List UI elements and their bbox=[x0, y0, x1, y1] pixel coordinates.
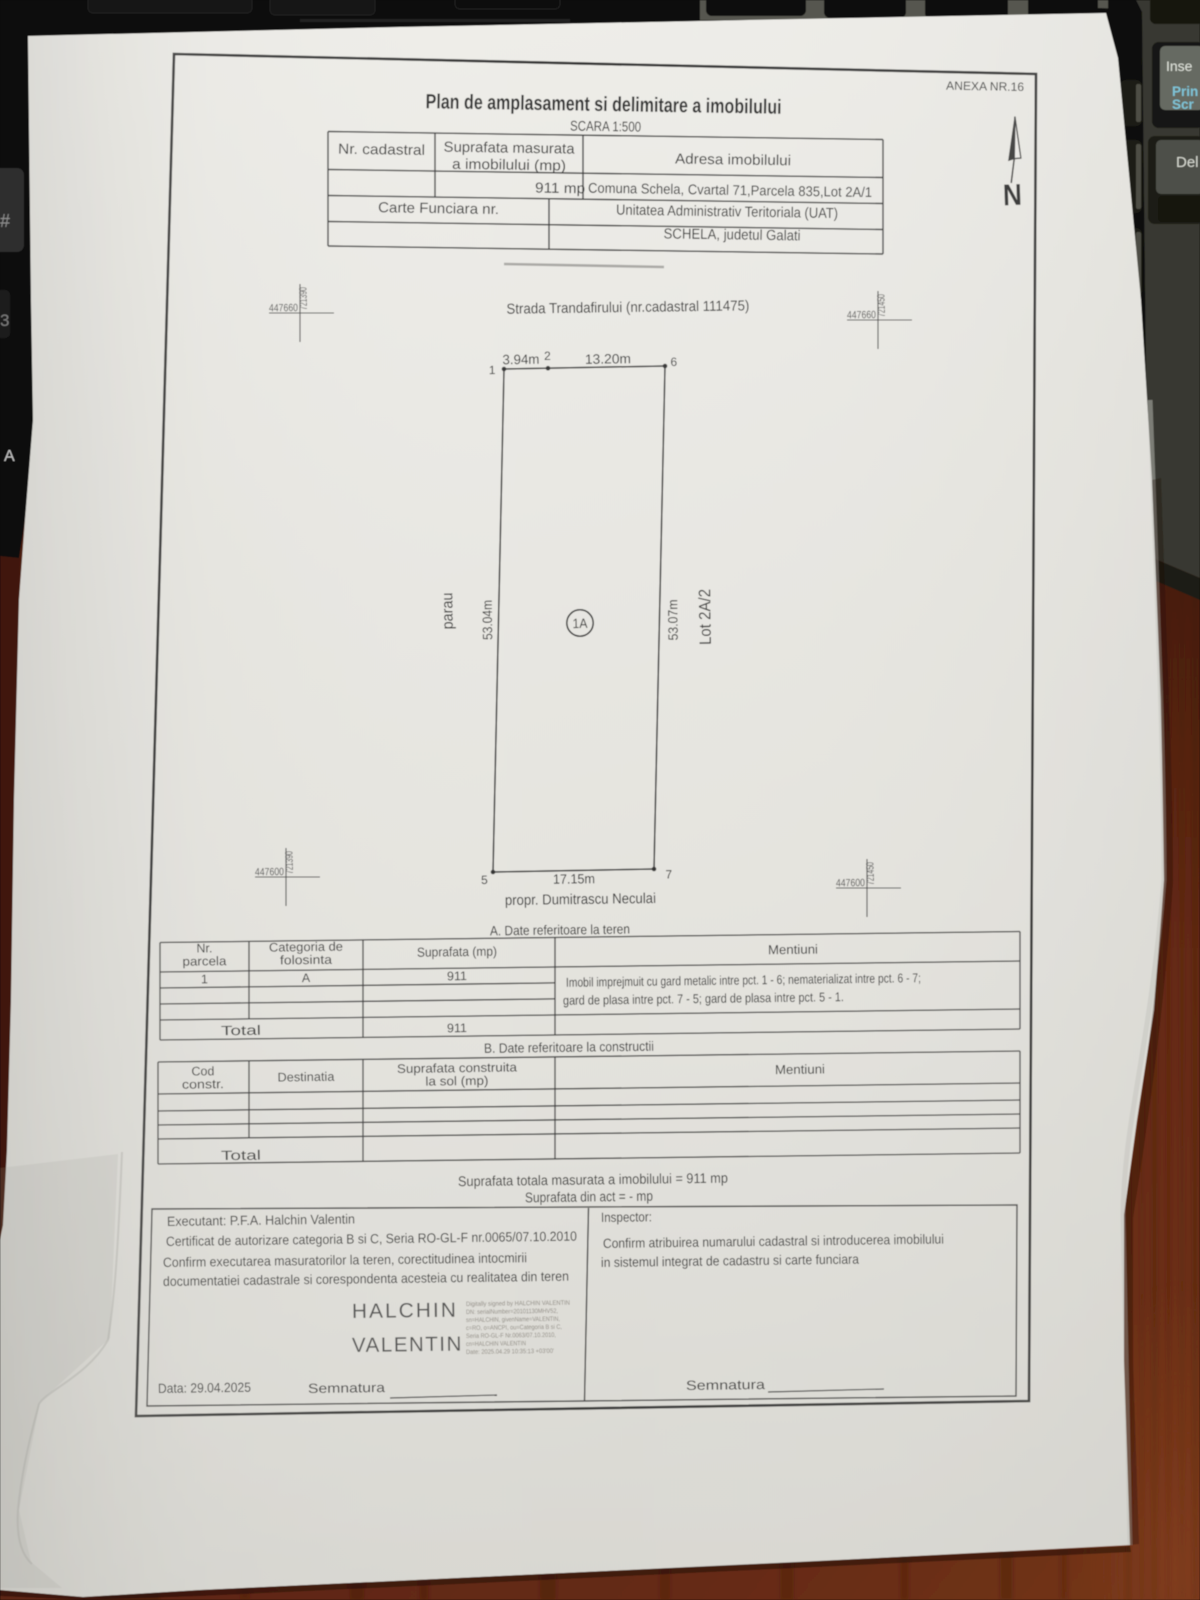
svg-text:Inse: Inse bbox=[1166, 58, 1193, 74]
svg-text:#: # bbox=[0, 211, 10, 231]
svg-text:A: A bbox=[4, 448, 15, 465]
svg-text:Del: Del bbox=[1176, 154, 1199, 171]
svg-text:3: 3 bbox=[0, 311, 9, 330]
svg-text:Scr: Scr bbox=[1172, 97, 1195, 112]
